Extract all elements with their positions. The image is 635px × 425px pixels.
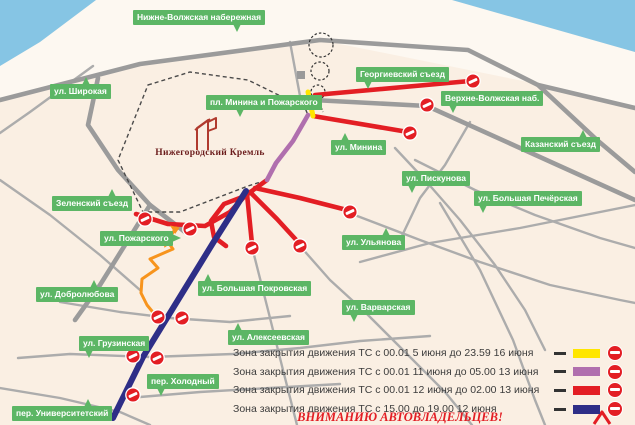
no-entry-icon	[607, 401, 623, 417]
attention-text: ВНИМАНИЮ АВТОВЛАДЕЛЬЦЕВ!	[250, 410, 550, 425]
no-entry-icon	[343, 205, 357, 219]
road-closure-map: Нижне-Волжская набережнаяул. Широкаяпл. …	[0, 0, 635, 425]
no-entry-icon	[607, 382, 623, 398]
monument-icon	[297, 71, 305, 79]
legend-swatch-purple	[573, 367, 600, 376]
legend-dash	[554, 352, 566, 355]
legend-swatch-navy	[573, 405, 600, 414]
legend-row-text: Зона закрытия движения ТС с 00.01 5 июня…	[233, 347, 550, 359]
legend-dash	[554, 389, 566, 392]
legend-row-text: Зона закрытия движения ТС с 00.01 11 июн…	[233, 366, 550, 378]
closure-legend: Зона закрытия движения ТС с 00.01 5 июня…	[233, 344, 623, 418]
legend-row: Зона закрытия движения ТС с 00.01 12 июн…	[233, 381, 623, 400]
no-entry-icon	[420, 98, 434, 112]
legend-dash	[554, 370, 566, 373]
no-entry-icon	[126, 349, 140, 363]
legend-row: Зона закрытия движения ТС с 00.01 11 июн…	[233, 363, 623, 382]
kremlin-label: Нижегородский Кремль	[150, 148, 270, 158]
legend-row: Зона закрытия движения ТС с 00.01 5 июня…	[233, 344, 623, 363]
no-entry-icon	[138, 212, 152, 226]
no-entry-icon	[466, 74, 480, 88]
no-entry-icon	[245, 241, 259, 255]
no-entry-icon	[126, 388, 140, 402]
no-entry-icon	[151, 310, 165, 324]
legend-dash	[554, 408, 566, 411]
legend-swatch-red	[573, 386, 600, 395]
no-entry-icon	[403, 126, 417, 140]
legend-swatch-yellow	[573, 349, 600, 358]
no-entry-icon	[293, 239, 307, 253]
no-entry-icon	[183, 222, 197, 236]
no-entry-icon	[607, 364, 623, 380]
no-entry-icon	[150, 351, 164, 365]
legend-row-text: Зона закрытия движения ТС с 00.01 12 июн…	[233, 384, 550, 396]
no-entry-icon	[607, 345, 623, 361]
no-entry-icon	[175, 311, 189, 325]
